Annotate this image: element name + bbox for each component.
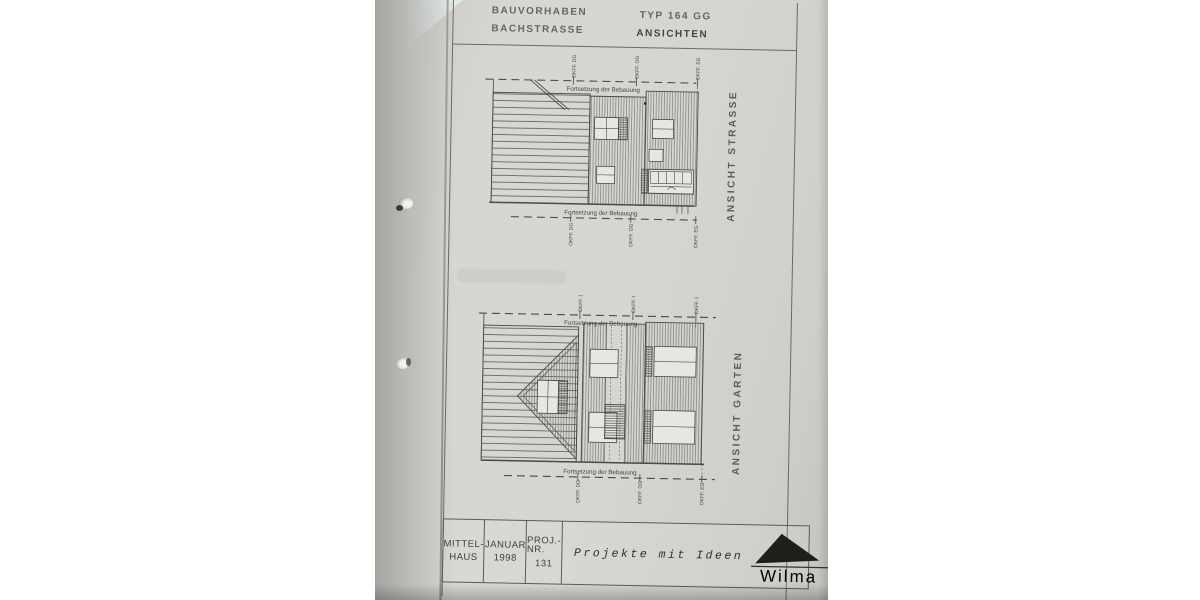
house-type-cell: MITTEL- HAUS <box>443 519 486 582</box>
faint-pencil-note <box>457 269 567 284</box>
header-sheet-label: ANSICHTEN <box>636 28 708 40</box>
roller-shutter <box>605 404 626 438</box>
continuation-label-bottom: Fortsetzung der Bebauung <box>563 468 637 476</box>
date-month: JANUAR <box>485 540 526 550</box>
header-street-name: BACHSTRASSE <box>491 23 584 36</box>
house-type-line1: MITTEL- <box>443 539 484 549</box>
garden-elevation-drawing: Fortsetzung der Bebauung Fortsetzung der… <box>475 293 724 512</box>
page-bottom-shadow <box>375 584 828 600</box>
continuation-dashed-line-top <box>479 313 716 318</box>
level-label: OKFF. OG <box>631 293 637 313</box>
continuation-dashed-line-top <box>485 79 696 83</box>
continuation-label-top: Fortsetzung der Bebauung <box>567 86 641 94</box>
level-label: OKFF. DG <box>571 55 577 78</box>
frame-line-right <box>785 3 798 600</box>
page-right-shadow <box>818 0 828 600</box>
neighbor-roof-hatch <box>491 92 590 204</box>
drawing-sheet: BAUVORHABEN BACHSTRASSE TYP 164 GG ANSIC… <box>436 0 828 600</box>
header-project-name: BAUVORHABEN <box>492 5 588 18</box>
level-label: OKFF. DG <box>575 480 581 503</box>
date-year: 1998 <box>494 553 517 563</box>
level-label: OKFF. EG <box>694 293 700 314</box>
ansicht-garten-label: ANSICHT GARTEN <box>731 335 745 475</box>
house-type-line2: HAUS <box>449 552 478 562</box>
level-label: OKFF. DG <box>578 293 584 312</box>
street-elevation-drawing: Fortsetzung der Bebauung Fortsetzung der… <box>480 52 719 256</box>
continuation-dashed-line-bottom <box>504 476 715 480</box>
ansicht-strasse-label: ANSICHT STRASSE <box>726 82 740 222</box>
level-label: OKFF. OG <box>637 481 643 505</box>
continuation-dashed-line-bottom <box>511 217 697 221</box>
continuation-label-top: Fortsetzung der Bebauung <box>564 320 638 328</box>
gable-window <box>537 380 568 414</box>
level-label: OKFF. EG <box>693 225 699 248</box>
window-small-right <box>649 149 663 161</box>
level-label: OKFF. EG <box>695 57 701 80</box>
project-number-label: PROJ.-NR. <box>527 536 561 556</box>
continuation-label-bottom: Fortsetzung der Bebauung <box>564 209 638 217</box>
middle-house-facade <box>588 96 646 205</box>
entry-door <box>641 169 647 193</box>
header-type-label: TYP 164 GG <box>640 10 712 22</box>
photo-background: BAUVORHABEN BACHSTRASSE TYP 164 GG ANSIC… <box>375 0 828 600</box>
garage-door <box>648 169 693 194</box>
company-slogan: Projekte mit Ideen <box>574 546 743 562</box>
punch-hole-top <box>399 197 413 209</box>
branding-cell: Projekte mit Ideen Wilma <box>561 522 828 589</box>
level-label: OKFF. OG <box>628 223 634 247</box>
punch-hole-bottom <box>395 357 409 369</box>
project-number-value: 131 <box>535 559 553 569</box>
project-number-cell: PROJ.-NR. 131 <box>526 521 562 584</box>
header-divider <box>452 43 796 51</box>
window-upper-left <box>594 117 627 140</box>
photographed-drawing-page: BAUVORHABEN BACHSTRASSE TYP 164 GG ANSIC… <box>0 0 1200 600</box>
title-block-table: MITTEL- HAUS JANUAR 1998 PROJ.-NR. 131 P… <box>442 518 810 589</box>
wilma-triangle-icon <box>755 533 820 564</box>
level-label: OKFF. EG <box>699 482 705 505</box>
level-label: OKFF. DG <box>568 223 574 246</box>
date-cell: JANUAR 1998 <box>484 520 527 583</box>
wilma-logo: Wilma <box>747 527 828 587</box>
level-label: OKFF. OG <box>634 56 640 80</box>
